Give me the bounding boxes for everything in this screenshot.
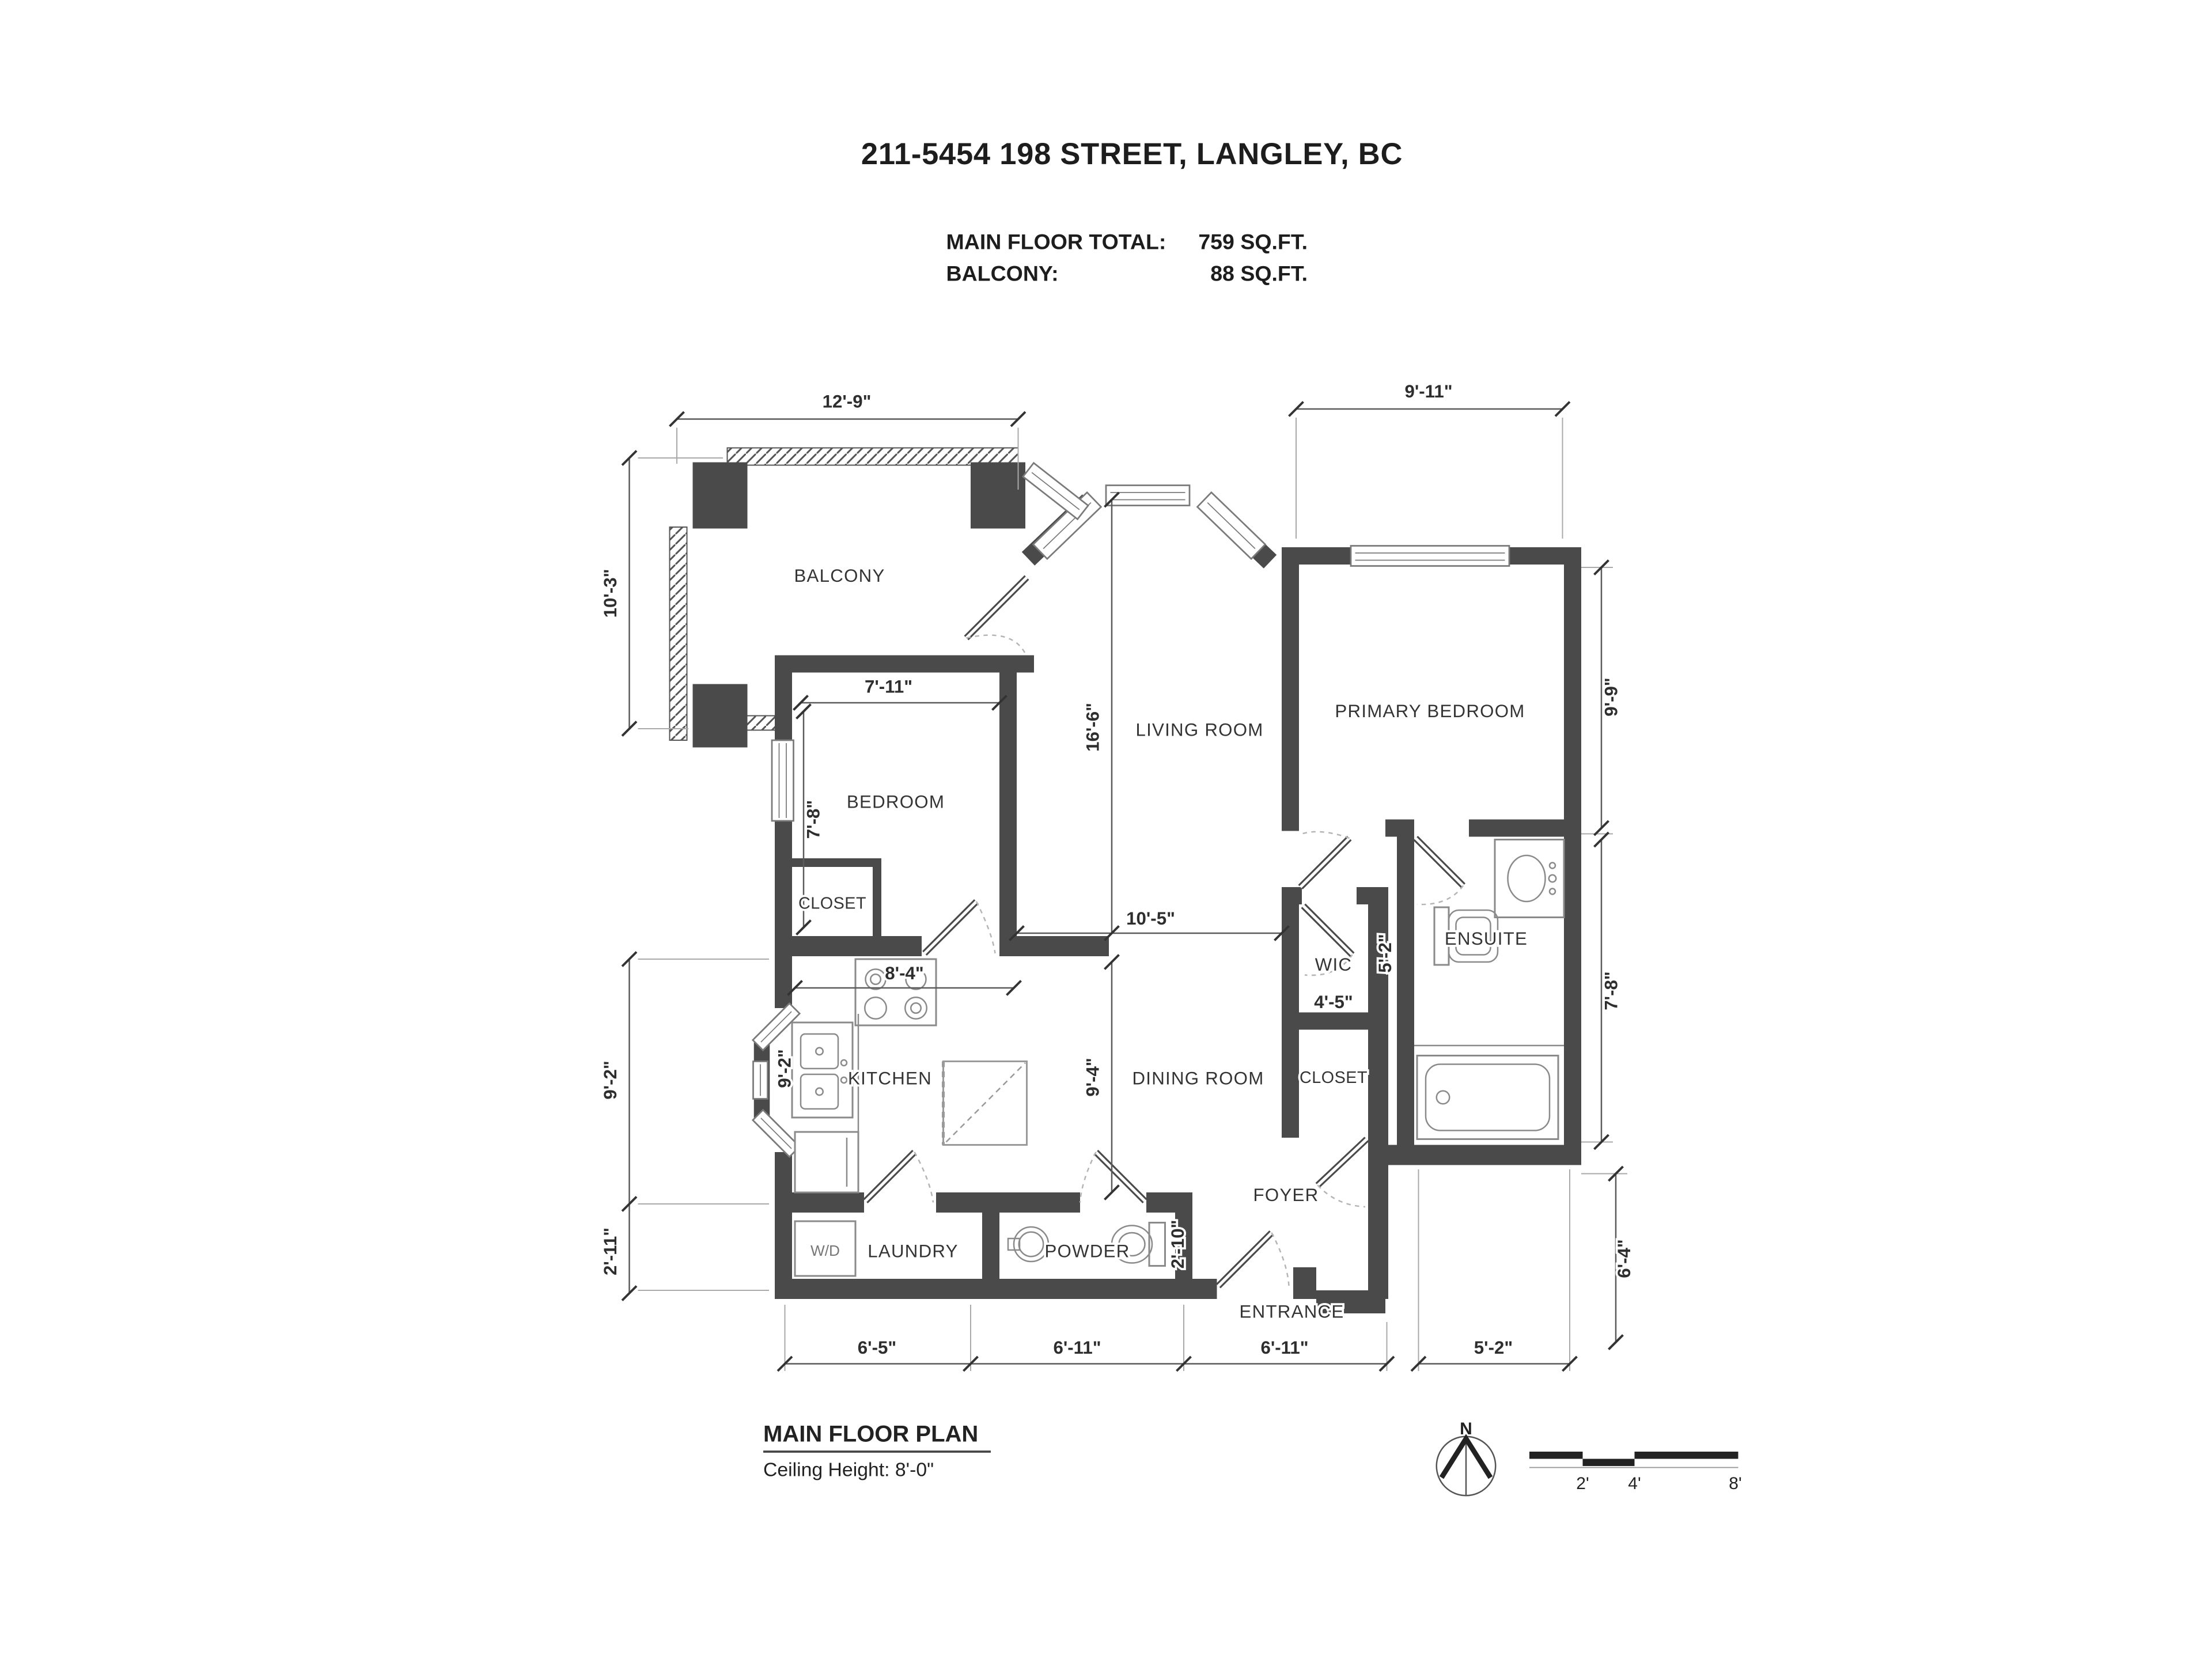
dim-wic-depth: 5'-2": [1375, 934, 1395, 972]
area-row-label: MAIN FLOOR TOTAL:: [946, 230, 1166, 254]
room-label-ensuite: ENSUITE: [1445, 929, 1528, 949]
balcony-door: [967, 578, 1027, 654]
dim-bottom-right: 5'-2": [1474, 1338, 1513, 1358]
dim-kitchen-width: 8'-4": [885, 963, 923, 983]
room-label-living-room: LIVING ROOM: [1135, 720, 1263, 740]
bathtub: [1417, 1056, 1558, 1139]
ensuite-vanity: [1495, 840, 1564, 918]
ceiling-height: Ceiling Height: 8'-0": [763, 1459, 934, 1481]
room-label-wic: WIC: [1315, 955, 1353, 975]
room-label-foyer-closet: CLOSET: [1300, 1069, 1368, 1087]
foyer-closet-door: [1318, 1139, 1367, 1207]
wd-label: W/D: [810, 1242, 840, 1259]
dim-dining-depth: 9'-4": [1083, 1058, 1103, 1096]
dim-wic-width: 4'-5": [1314, 992, 1353, 1012]
floor-plan-drawing: 211-5454 198 STREET, LANGLEY, BC MAIN FL…: [0, 0, 2212, 1659]
balcony-side-window: [1023, 463, 1088, 520]
dim-powder-depth: 2'-10": [1168, 1220, 1188, 1269]
fridge: [795, 1132, 858, 1192]
dim-bedroom-width: 7'-11": [865, 677, 912, 697]
kitchen-island: [944, 1062, 1027, 1145]
scale-bar: 2' 4' 8': [1529, 1452, 1742, 1493]
kitchen-bay-window-mid: [753, 1062, 768, 1099]
floor-plan-page: 211-5454 198 STREET, LANGLEY, BC MAIN FL…: [0, 0, 2212, 1659]
bay-window-right: [1198, 493, 1266, 559]
dim-kitchen-depth: 9'-2": [600, 1060, 620, 1099]
room-label-powder: POWDER: [1044, 1241, 1130, 1262]
area-row-value: 759 SQ.FT.: [1198, 230, 1308, 254]
page-title: 211-5454 198 STREET, LANGLEY, BC: [861, 137, 1403, 171]
room-label-primary-bedroom: PRIMARY BEDROOM: [1335, 701, 1525, 721]
area-row-value: 88 SQ.FT.: [1210, 262, 1308, 286]
room-label-balcony: BALCONY: [794, 566, 885, 586]
ensuite-door: [1416, 838, 1464, 904]
dim-ensuite-depth: 7'-8": [1601, 971, 1622, 1010]
entrance-door: [1218, 1233, 1289, 1286]
dim-kitchen-inner-depth: 9'-2": [775, 1049, 795, 1088]
dim-entry-side-depth: 6'-4": [1614, 1239, 1634, 1278]
plan-title: MAIN FLOOR PLAN: [763, 1422, 978, 1447]
laundry-door: [866, 1152, 934, 1203]
room-label-entrance: ENTRANCE: [1240, 1302, 1344, 1322]
dim-hall-width: 10'-5": [1126, 908, 1175, 929]
walls: [762, 501, 1582, 1313]
dim-primary-width: 9'-11": [1404, 381, 1452, 402]
bedroom-door: [925, 902, 995, 953]
scale-tick-8: 8': [1729, 1474, 1741, 1493]
dim-bottom-laundry: 6'-5": [858, 1338, 896, 1358]
scale-tick-2: 2': [1576, 1474, 1589, 1493]
room-label-bedroom: BEDROOM: [847, 792, 945, 812]
dim-bedroom-depth: 7'-8": [804, 800, 824, 839]
dim-balcony-width: 12'-9": [823, 392, 872, 412]
room-label-bedroom-closet: CLOSET: [798, 895, 866, 913]
north-arrow-icon: N: [1437, 1419, 1496, 1495]
washer-dryer: W/D: [795, 1221, 855, 1276]
bay-window-top: [1106, 486, 1190, 506]
dim-living-length: 16'-6": [1083, 703, 1103, 752]
scale-tick-4: 4': [1628, 1474, 1641, 1493]
dim-bottom-foyer: 6'-11": [1260, 1338, 1308, 1358]
room-label-laundry: LAUNDRY: [868, 1241, 959, 1262]
dim-bottom-powder: 6'-11": [1053, 1338, 1101, 1358]
powder-sink: [1008, 1227, 1048, 1262]
dim-laundry-depth: 2'-11": [600, 1228, 620, 1275]
room-label-kitchen: KITCHEN: [848, 1069, 932, 1089]
room-label-dining-room: DINING ROOM: [1132, 1069, 1264, 1089]
dim-balcony-depth: 10'-3": [600, 569, 620, 618]
room-label-foyer: FOYER: [1253, 1185, 1319, 1205]
kitchen-sink: [792, 1022, 853, 1118]
dimension-labels: 12'-9" 9'-11" 10'-3" 16'-6" 7'-11" 7'-8"…: [600, 381, 1634, 1358]
primary-bedroom-window: [1351, 546, 1509, 566]
dim-primary-depth: 9'-9": [1601, 677, 1622, 716]
footer: MAIN FLOOR PLAN Ceiling Height: 8'-0" N …: [763, 1419, 1742, 1495]
primary-bedroom-door: [1301, 832, 1350, 887]
area-row-label: BALCONY:: [946, 262, 1059, 286]
bedroom-window: [772, 740, 794, 821]
